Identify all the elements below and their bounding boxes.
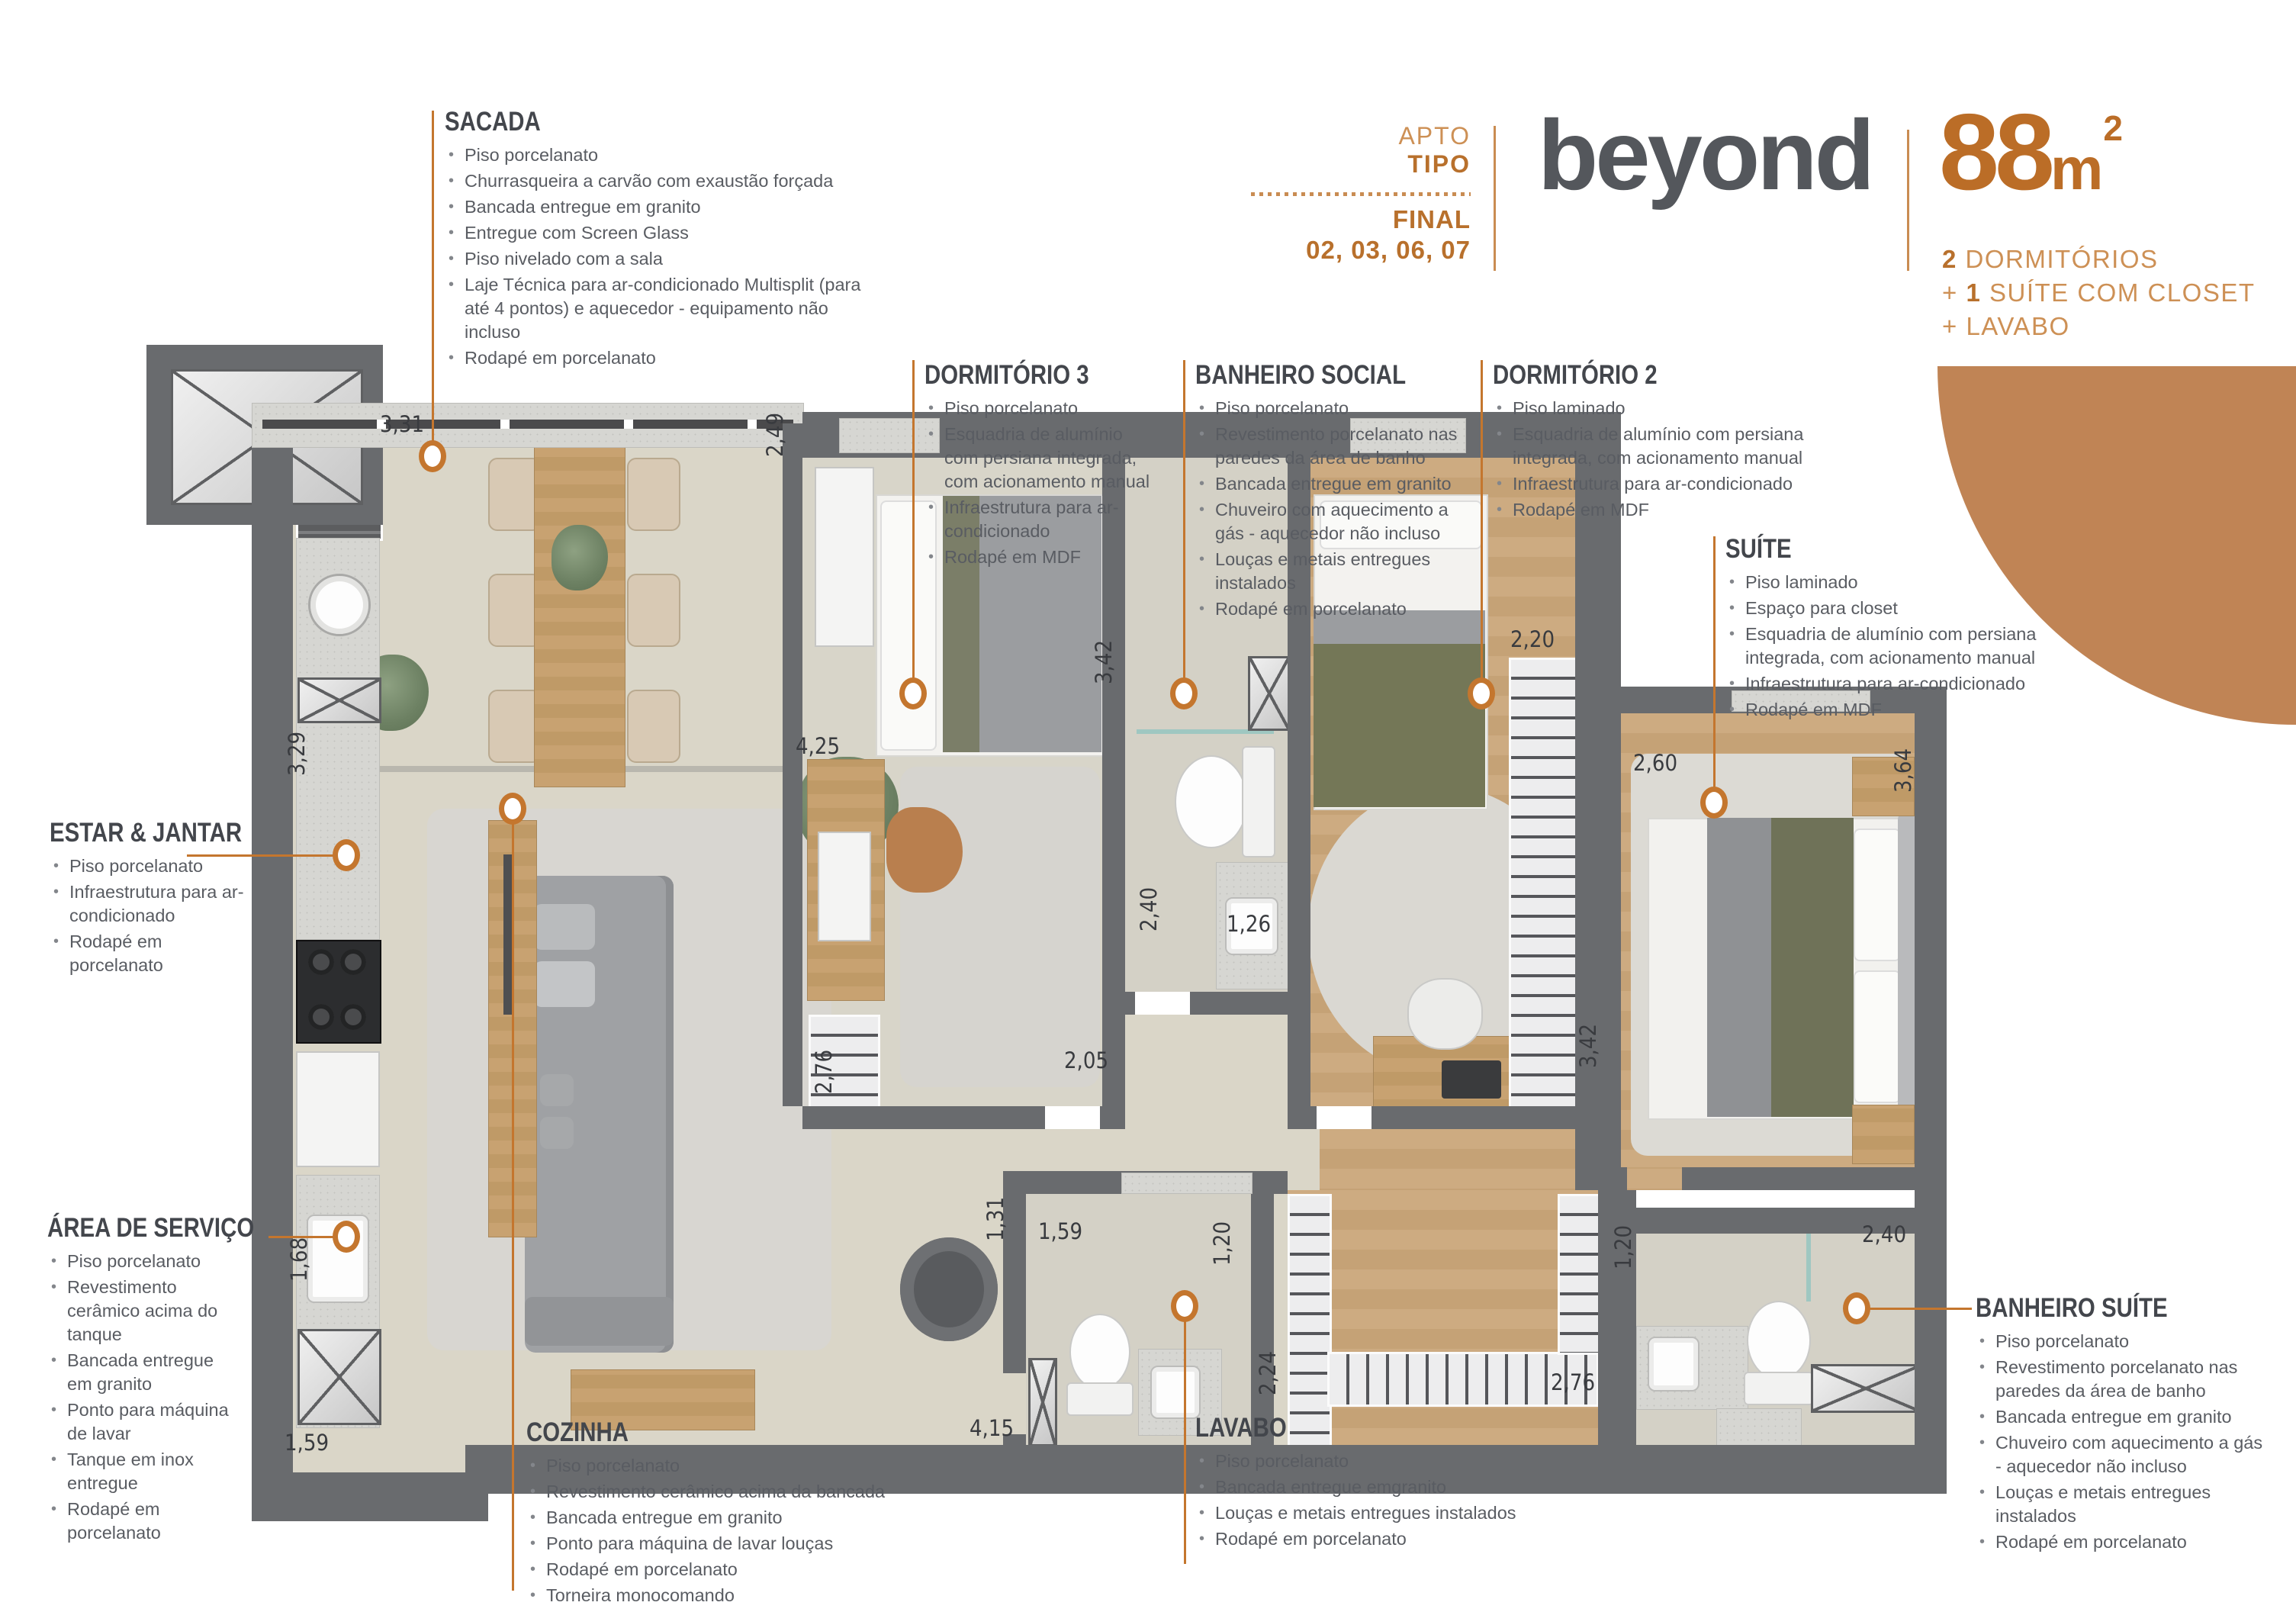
spec-item: Esquadria de alumínio com persiana integ… xyxy=(1493,423,1821,470)
spec-item: Rodapé em MDF xyxy=(925,545,1161,569)
spec-item: Espaço para closet xyxy=(1725,597,2053,620)
section-items: Piso porcelanatoChurrasqueira a carvão c… xyxy=(445,143,887,370)
wall-sacada-dorm3 xyxy=(783,423,802,1106)
section-title: SACADA xyxy=(445,107,816,137)
floor-banheiro-corridor xyxy=(1125,1015,1288,1129)
callout-line-dorm3 xyxy=(912,360,915,684)
cooktop xyxy=(296,940,381,1044)
sofa-pillow xyxy=(534,961,595,1007)
brand-logo: beyond xyxy=(1514,98,1896,212)
spec-item: Piso nivelado com a sala xyxy=(445,247,887,271)
spec-item: Torneira monocomando xyxy=(526,1584,969,1607)
dimension-label: 1,59 xyxy=(285,1430,329,1456)
dimension-label: 2,60 xyxy=(1633,750,1677,776)
dining-chair xyxy=(627,574,680,647)
dorm2-closet-rack xyxy=(1509,658,1577,1118)
spec-item: Rodapé em porcelanato xyxy=(1195,1527,1554,1551)
section-banheiro-social: BANHEIRO SOCIAL Piso porcelanatoRevestim… xyxy=(1195,360,1474,623)
toilet-icon xyxy=(1747,1301,1811,1380)
stool xyxy=(540,1074,574,1106)
section-title: ESTAR & JANTAR xyxy=(50,818,213,848)
callout-line-banheiro-social xyxy=(1183,360,1185,684)
apto-tipo-block: APTO TIPO xyxy=(1251,122,1471,179)
burner-icon xyxy=(308,949,334,975)
section-suite: SUÍTE Piso laminadoEspaço para closetEsq… xyxy=(1725,534,2053,724)
toilet-tank xyxy=(1744,1372,1814,1405)
section-items: Piso laminadoEspaço para closetEsquadria… xyxy=(1725,571,2053,722)
section-title: ÁREA DE SERVIÇO xyxy=(47,1213,211,1244)
dimension-label: 3,64 xyxy=(1890,748,1916,793)
spec-item: Rodapé em porcelanato xyxy=(1976,1530,2269,1554)
section-banheiro-suite: BANHEIRO SUÍTE Piso porcelanatoRevestime… xyxy=(1976,1293,2269,1556)
callout-line-area-servico xyxy=(269,1236,336,1238)
dimension-label: 2,49 xyxy=(762,413,788,457)
spec-item: Esquadria de alumínio com persiana integ… xyxy=(1725,623,2053,670)
shower-box xyxy=(1248,656,1291,731)
wall-dorm2-bottom xyxy=(1371,1106,1575,1129)
dorm2-laptop xyxy=(1442,1060,1501,1099)
spec-item: Rodapé em porcelanato xyxy=(526,1558,969,1581)
tipo-label: TIPO xyxy=(1251,150,1471,179)
dimension-label: 3,29 xyxy=(284,732,310,776)
dorm3-desk-object xyxy=(818,832,871,941)
spec-item: Louças e metais entregues instalados xyxy=(1195,1501,1554,1525)
section-dormitorio2: DORMITÓRIO 2 Piso laminadoEsquadria de a… xyxy=(1493,360,1821,524)
spec-item: Churrasqueira a carvão com exaustão forç… xyxy=(445,169,887,193)
dimension-label: 2,40 xyxy=(1136,887,1162,931)
dimension-label: 4,25 xyxy=(796,733,840,759)
toilet-icon xyxy=(1069,1314,1130,1390)
suite-nightstand xyxy=(1852,1105,1915,1164)
dimension-label: 2,24 xyxy=(1255,1351,1281,1395)
spec-item: Bancada entregue em granito xyxy=(526,1506,969,1530)
section-items: Piso laminadoEsquadria de alumínio com p… xyxy=(1493,397,1821,522)
spec-item: Revestimento cerâmico acima do tanque xyxy=(47,1276,242,1347)
dimension-label: 1,59 xyxy=(1038,1218,1082,1244)
area-value: 88 xyxy=(1939,92,2050,213)
sink-lavabo xyxy=(1150,1366,1201,1419)
callout-marker-lavabo xyxy=(1171,1290,1198,1322)
suite-pillow xyxy=(1854,970,1901,1103)
dining-table xyxy=(534,441,625,787)
final-values: 02, 03, 06, 07 xyxy=(1251,235,1471,265)
callout-marker-area-servico xyxy=(333,1221,360,1253)
stool xyxy=(540,1117,574,1149)
lounge-chair xyxy=(900,1237,998,1341)
spec-item: Ponto para máquina de lavar xyxy=(47,1398,242,1446)
burner-icon xyxy=(308,1004,334,1030)
header-divider-left xyxy=(1494,126,1496,271)
wall-dorm3-bottom xyxy=(802,1106,1045,1129)
spec-item: Piso porcelanato xyxy=(1195,1450,1554,1473)
apto-label: APTO xyxy=(1251,122,1471,150)
spec-item: Esquadria de alumínio com persiana integ… xyxy=(925,423,1161,494)
wall-banheiro-bottom xyxy=(1125,992,1135,1015)
sofa-pillow xyxy=(534,904,595,950)
washer-space xyxy=(297,1329,381,1425)
section-title: BANHEIRO SUÍTE xyxy=(1976,1293,2222,1324)
wall-dorm2-suite xyxy=(1575,412,1621,1190)
spec-item: Louças e metais entregues instalados xyxy=(1195,548,1474,595)
section-items: Piso porcelanatoRevestimento porcelanato… xyxy=(1195,397,1474,621)
niche-lavabo xyxy=(1121,1173,1253,1194)
toilet-tank xyxy=(1066,1382,1134,1416)
callout-line-sacada xyxy=(432,111,434,446)
suite-blanket-gray xyxy=(1707,818,1776,1117)
area-badge: 88m2 xyxy=(1939,90,2123,215)
closet-rack-right xyxy=(1558,1194,1600,1355)
callout-marker-banheiro-social xyxy=(1170,677,1198,709)
toilet-icon xyxy=(1175,755,1248,848)
page: APTO TIPO FINAL 02, 03, 06, 07 beyond 88… xyxy=(0,0,2296,1612)
section-sacada: SACADA Piso porcelanatoChurrasqueira a c… xyxy=(445,107,887,372)
spec-item: Piso porcelanato xyxy=(445,143,887,167)
wall-suite-bottom xyxy=(1682,1167,1947,1190)
feature-line: + LAVABO xyxy=(1942,310,2256,343)
spec-item: Piso porcelanato xyxy=(50,854,244,878)
dimension-label: 1,68 xyxy=(286,1237,312,1282)
spec-item: Tanque em inox entregue xyxy=(47,1448,242,1495)
dimension-label: 1,26 xyxy=(1227,911,1271,937)
spec-item: Infraestrutura para ar-condicionado xyxy=(1493,472,1821,496)
section-area-servico: ÁREA DE SERVIÇO Piso porcelanatoRevestim… xyxy=(47,1213,242,1547)
callout-marker-estar-jantar xyxy=(333,839,360,871)
area-unit: m xyxy=(2050,135,2103,202)
suite-blanket-olive xyxy=(1771,818,1854,1117)
dimension-label: 2,76 xyxy=(1551,1369,1595,1395)
dimension-label: 2,05 xyxy=(1064,1047,1108,1073)
wall-dorm2-bottom xyxy=(1310,1106,1317,1129)
dotted-divider xyxy=(1251,192,1471,196)
spec-item: Bancada entregue em granito xyxy=(445,195,887,219)
spec-item: Revestimento porcelanato nas paredes da … xyxy=(1195,423,1474,470)
spec-item: Bancada entregue emgranito xyxy=(1195,1475,1554,1499)
feature-line: 2 DORMITÓRIOS xyxy=(1942,243,2256,276)
wall-suite-bottom xyxy=(1621,1167,1627,1190)
spec-item: Rodapé em MDF xyxy=(1725,698,2053,722)
wall-bottom-service xyxy=(252,1472,488,1521)
area-superscript: 2 xyxy=(2103,108,2123,148)
section-title: DORMITÓRIO 2 xyxy=(1493,360,1768,391)
section-estar-jantar: ESTAR & JANTAR Piso porcelanatoInfraestr… xyxy=(50,818,244,980)
spec-item: Ponto para máquina de lavar louças xyxy=(526,1532,969,1556)
spec-item: Piso laminado xyxy=(1493,397,1821,420)
dorm2-chair xyxy=(1407,978,1483,1050)
spec-item: Revestimento cerâmico acima da bancada xyxy=(526,1480,969,1504)
callout-marker-suite xyxy=(1700,787,1728,819)
spec-item: Chuveiro com aquecimento a gás - aqueced… xyxy=(1976,1431,2269,1478)
lavabo-shaft xyxy=(1028,1358,1057,1446)
callout-line-estar-jantar xyxy=(187,854,336,857)
door-sill-banheiro-suite xyxy=(1716,1408,1802,1446)
spec-item: Bancada entregue em granito xyxy=(1195,472,1474,496)
sink-banheiro-suite xyxy=(1648,1337,1699,1392)
spec-item: Chuveiro com aquecimento a gás - aqueced… xyxy=(1195,498,1474,545)
wall-lavabo-right xyxy=(1251,1194,1274,1445)
callout-line-banheiro-suite xyxy=(1867,1308,1972,1310)
dimension-label: 3,42 xyxy=(1091,640,1117,684)
spec-item: Infraestrutura para ar-condicionado xyxy=(925,496,1161,543)
spec-item: Bancada entregue em granito xyxy=(1976,1405,2269,1429)
spec-item: Louças e metais entregues instalados xyxy=(1976,1481,2269,1528)
callout-marker-banheiro-suite xyxy=(1843,1292,1870,1324)
spec-item: Piso porcelanato xyxy=(47,1250,242,1273)
section-items: Piso porcelanatoRevestimento cerâmico ac… xyxy=(526,1454,969,1607)
spec-item: Laje Técnica para ar-condicionado Multis… xyxy=(445,273,887,344)
final-label: FINAL xyxy=(1251,204,1471,235)
dimension-label: 1,20 xyxy=(1610,1225,1636,1269)
dimension-label: 2,20 xyxy=(1510,626,1555,652)
dimension-label: 3,31 xyxy=(380,411,424,437)
dimension-label: 1,31 xyxy=(982,1197,1008,1241)
callout-marker-dorm2 xyxy=(1468,677,1495,709)
spec-item: Bancada entregue em granito xyxy=(47,1349,242,1396)
section-items: Piso porcelanatoEsquadria de alumínio co… xyxy=(925,397,1161,569)
dimension-label: 3,42 xyxy=(1575,1024,1601,1068)
dimension-label: 1,20 xyxy=(1209,1221,1235,1266)
spec-item: Rodapé em porcelanato xyxy=(50,930,244,977)
section-dormitorio3: DORMITÓRIO 3 Piso porcelanatoEsquadria d… xyxy=(925,360,1161,571)
spec-item: Piso porcelanato xyxy=(1976,1330,2269,1353)
feature-line: + 1 SUÍTE COM CLOSET xyxy=(1942,276,2256,310)
refrigerator xyxy=(296,1051,380,1167)
wall-right xyxy=(1915,713,1947,1445)
sofa-chaise xyxy=(525,1297,674,1346)
callout-line-suite xyxy=(1713,536,1716,793)
callout-marker-sacada xyxy=(419,440,446,472)
section-cozinha: COZINHA Piso porcelanatoRevestimento cer… xyxy=(526,1417,969,1610)
dorm3-wardrobe xyxy=(815,467,874,647)
kitchen-sink xyxy=(308,574,371,636)
burner-icon xyxy=(340,1004,366,1030)
header-divider-right xyxy=(1907,130,1909,271)
section-title: LAVABO xyxy=(1195,1413,1497,1443)
shaft-box xyxy=(297,677,381,723)
spec-item: Piso porcelanato xyxy=(925,397,1161,420)
suite-pillow xyxy=(1854,829,1901,961)
section-items: Piso porcelanatoRevestimento porcelanato… xyxy=(1976,1330,2269,1554)
shower-box-suite xyxy=(1811,1364,1921,1413)
spec-item: Rodapé em porcelanato xyxy=(445,346,887,370)
section-lavabo: LAVABO Piso porcelanatoBancada entregue … xyxy=(1195,1413,1554,1553)
dimension-label: 4,15 xyxy=(970,1415,1014,1441)
spec-item: Infraestrutura para ar-condicionado xyxy=(1725,672,2053,696)
callout-line-dorm2 xyxy=(1481,360,1483,684)
sacada-rail xyxy=(262,420,793,429)
spec-item: Rodapé em MDF xyxy=(1493,498,1821,522)
section-title: COZINHA xyxy=(526,1417,898,1448)
spec-item: Piso porcelanato xyxy=(526,1454,969,1478)
unit-features: 2 DORMITÓRIOS + 1 SUÍTE COM CLOSET + LAV… xyxy=(1942,243,2256,343)
dimension-label: 2,40 xyxy=(1862,1221,1906,1247)
section-items: Piso porcelanatoRevestimento cerâmico ac… xyxy=(47,1250,242,1545)
section-items: Piso porcelanatoInfraestrutura para ar-c… xyxy=(50,854,244,977)
section-items: Piso porcelanatoBancada entregue emgrani… xyxy=(1195,1450,1554,1551)
final-block: FINAL 02, 03, 06, 07 xyxy=(1251,204,1471,265)
dorm3-chair xyxy=(886,807,963,893)
wall-left xyxy=(252,423,293,1476)
suite-headboard xyxy=(1898,813,1916,1121)
dining-chair xyxy=(627,458,680,531)
closet-rack-left xyxy=(1288,1194,1332,1450)
section-title: SUÍTE xyxy=(1725,534,2001,565)
dimension-label: 2,76 xyxy=(811,1050,837,1094)
spec-item: Revestimento porcelanato nas paredes da … xyxy=(1976,1356,2269,1403)
toilet-tank xyxy=(1242,746,1275,857)
dining-chair xyxy=(627,690,680,763)
section-title: DORMITÓRIO 3 xyxy=(925,360,1123,391)
callout-marker-dorm3 xyxy=(899,677,927,709)
spec-item: Infraestrutura para ar-condicionado xyxy=(50,880,244,928)
spec-item: Rodapé em porcelanato xyxy=(1195,597,1474,621)
callout-line-cozinha xyxy=(512,819,514,1591)
spec-item: Piso laminado xyxy=(1725,571,2053,594)
callout-marker-cozinha xyxy=(499,793,526,825)
burner-icon xyxy=(340,949,366,975)
callout-line-lavabo xyxy=(1184,1317,1186,1564)
wall-banheiro-bottom xyxy=(1190,992,1288,1015)
spec-item: Piso porcelanato xyxy=(1195,397,1474,420)
spec-item: Rodapé em porcelanato xyxy=(47,1498,242,1545)
dorm2-blanket-olive xyxy=(1314,644,1485,807)
spec-item: Entregue com Screen Glass xyxy=(445,221,887,245)
section-title: BANHEIRO SOCIAL xyxy=(1195,360,1429,391)
